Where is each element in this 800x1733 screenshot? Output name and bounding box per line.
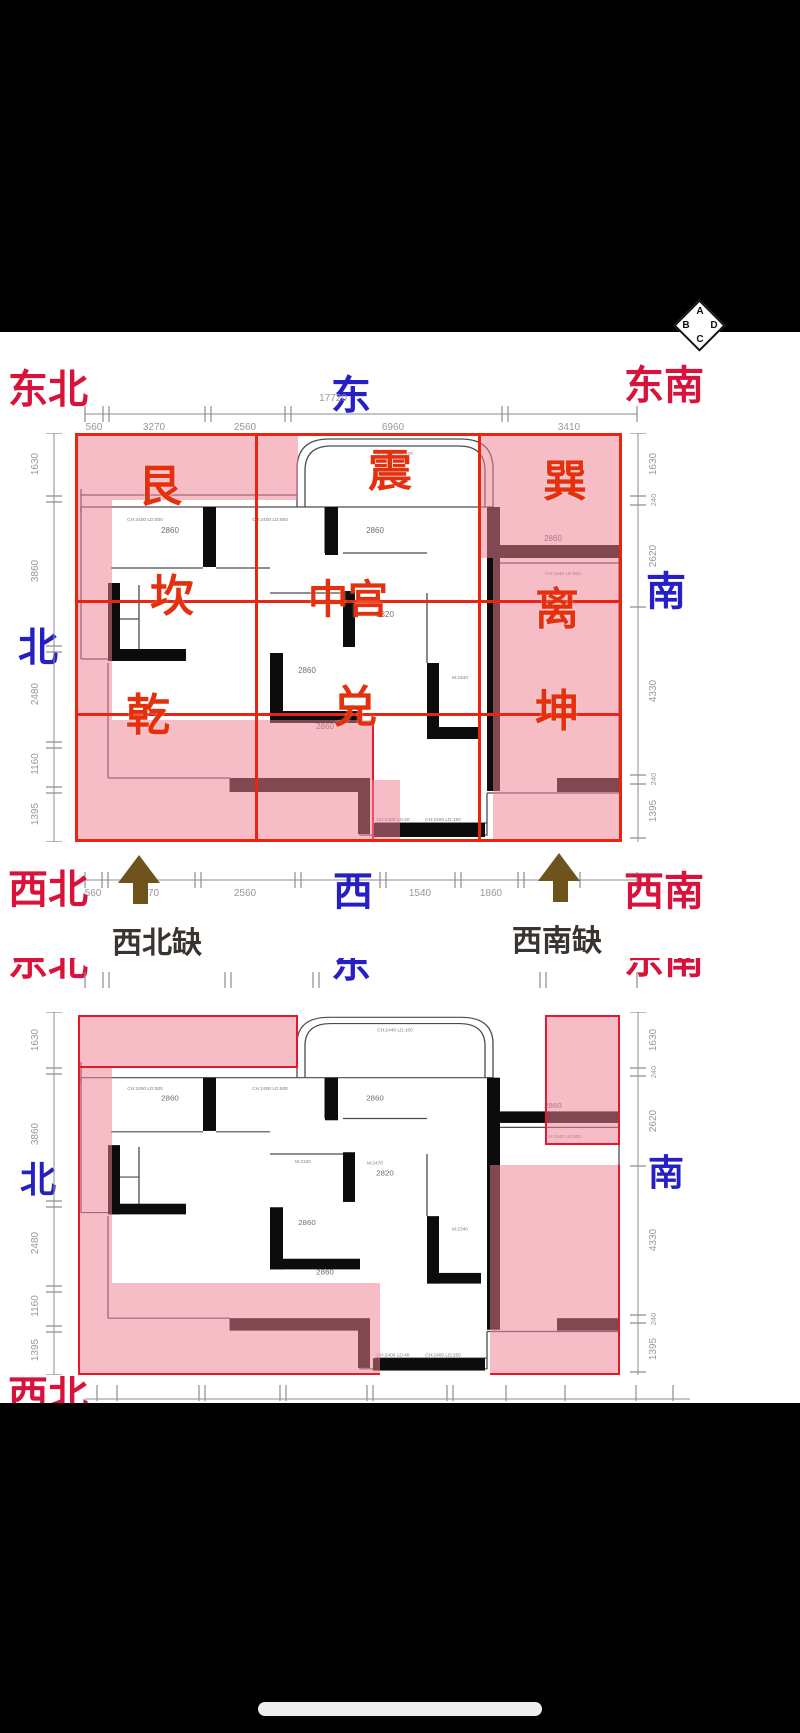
- left-dimension-line: 1630 3860 2480 1160 1395: [28, 433, 64, 842]
- compass-letter-bottom: C: [694, 335, 706, 345]
- phone-screenshot: 2860 2860 2860 2820 2860 2860 CH:2400 LD…: [0, 0, 800, 1733]
- trigram-qian: 乾: [126, 694, 170, 738]
- plan2-top-ticks: [75, 972, 645, 992]
- southwest-missing-label: 西南缺: [512, 916, 602, 960]
- dim-left: 1160: [30, 1295, 41, 1317]
- dim-seg: 2560: [234, 422, 257, 433]
- dim-right: 2620: [648, 544, 659, 567]
- dim-left: 1395: [30, 1338, 41, 1361]
- missing-area2-north-band: [78, 1015, 298, 1068]
- northwest-arrow-icon: [118, 855, 162, 909]
- compass-letter-left: B: [680, 321, 692, 331]
- dim-right: 4330: [648, 679, 659, 702]
- direction-northwest: 西北: [8, 870, 88, 910]
- plan2-bottom-ticks: [75, 1382, 725, 1403]
- dim-right: 1630: [648, 1028, 659, 1051]
- dim-seg: 6960: [382, 422, 405, 433]
- compass-letter-right: D: [708, 321, 720, 331]
- dim-left: 1160: [30, 753, 41, 775]
- grid-vertical-1: [255, 433, 258, 842]
- dim-seg: 3410: [558, 422, 581, 433]
- missing-area2-west-strip: [78, 1068, 112, 1283]
- compass-letter-top: A: [694, 307, 706, 317]
- bottom-letterbox: [0, 1403, 800, 1733]
- southwest-arrow-icon: [538, 853, 582, 907]
- dim-left: 2480: [30, 682, 41, 705]
- trigram-center: 中宫: [308, 580, 388, 620]
- dim-left: 1395: [30, 802, 41, 825]
- dim-total: 17720: [319, 393, 347, 404]
- top-dimension-line: 17720 560 3270 2560 6960 3410: [75, 390, 645, 434]
- dim-left: 3860: [30, 559, 41, 582]
- right-dimension-line: 1630 240 2620 4330 240 1395: [630, 433, 666, 842]
- dim-seg: 3270: [143, 422, 166, 433]
- dim-left: 1630: [30, 452, 41, 475]
- dim-right-small: 240: [649, 494, 658, 507]
- compass-logo: A B D C: [676, 302, 724, 350]
- dim-seg: 560: [86, 422, 103, 433]
- dim-right: 2620: [648, 1109, 659, 1132]
- home-indicator[interactable]: [258, 1702, 542, 1716]
- trigram-zhen: 震: [368, 450, 412, 494]
- trigram-kan: 坎: [150, 575, 194, 619]
- dim-right-small: 240: [649, 773, 658, 786]
- direction-southwest: 西南: [624, 872, 704, 912]
- trigram-dui: 兑: [333, 686, 377, 730]
- dim-right: 1630: [648, 452, 659, 475]
- dim-right: 1395: [648, 1337, 659, 1360]
- dim-left: 1630: [30, 1028, 41, 1051]
- top-letterbox: [0, 0, 800, 332]
- missing-area2-northeast-block: [545, 1015, 620, 1145]
- dim-left: 2480: [30, 1231, 41, 1254]
- dim-right-small: 240: [649, 1313, 658, 1326]
- dim-seg: 1860: [480, 888, 503, 899]
- dim-seg: 1540: [409, 888, 432, 899]
- dim-right: 4330: [648, 1228, 659, 1251]
- dim-right-small: 240: [649, 1066, 658, 1079]
- trigram-xun: 巽: [543, 460, 587, 504]
- missing-area2-southeast-block: [490, 1165, 620, 1375]
- dim-right: 1395: [648, 799, 659, 822]
- dim-seg: 2560: [234, 888, 257, 899]
- left-dimension-line-2: 1630 3860 2480 1160 1395: [28, 1012, 64, 1375]
- trigram-gen: 艮: [138, 465, 182, 509]
- right-dimension-line-2: 1630 240 2620 4330 240 1395: [630, 1012, 666, 1375]
- missing-area2-southwest-block: [78, 1283, 380, 1375]
- direction-west: 西: [333, 872, 373, 912]
- trigram-kun: 坤: [535, 690, 579, 734]
- grid-vertical-2: [478, 433, 481, 842]
- northwest-missing-label: 西北缺: [112, 918, 202, 962]
- plan2-cropped-header: 东北 东 东南: [0, 958, 800, 992]
- dim-left: 3860: [30, 1122, 41, 1145]
- trigram-li: 离: [535, 588, 579, 632]
